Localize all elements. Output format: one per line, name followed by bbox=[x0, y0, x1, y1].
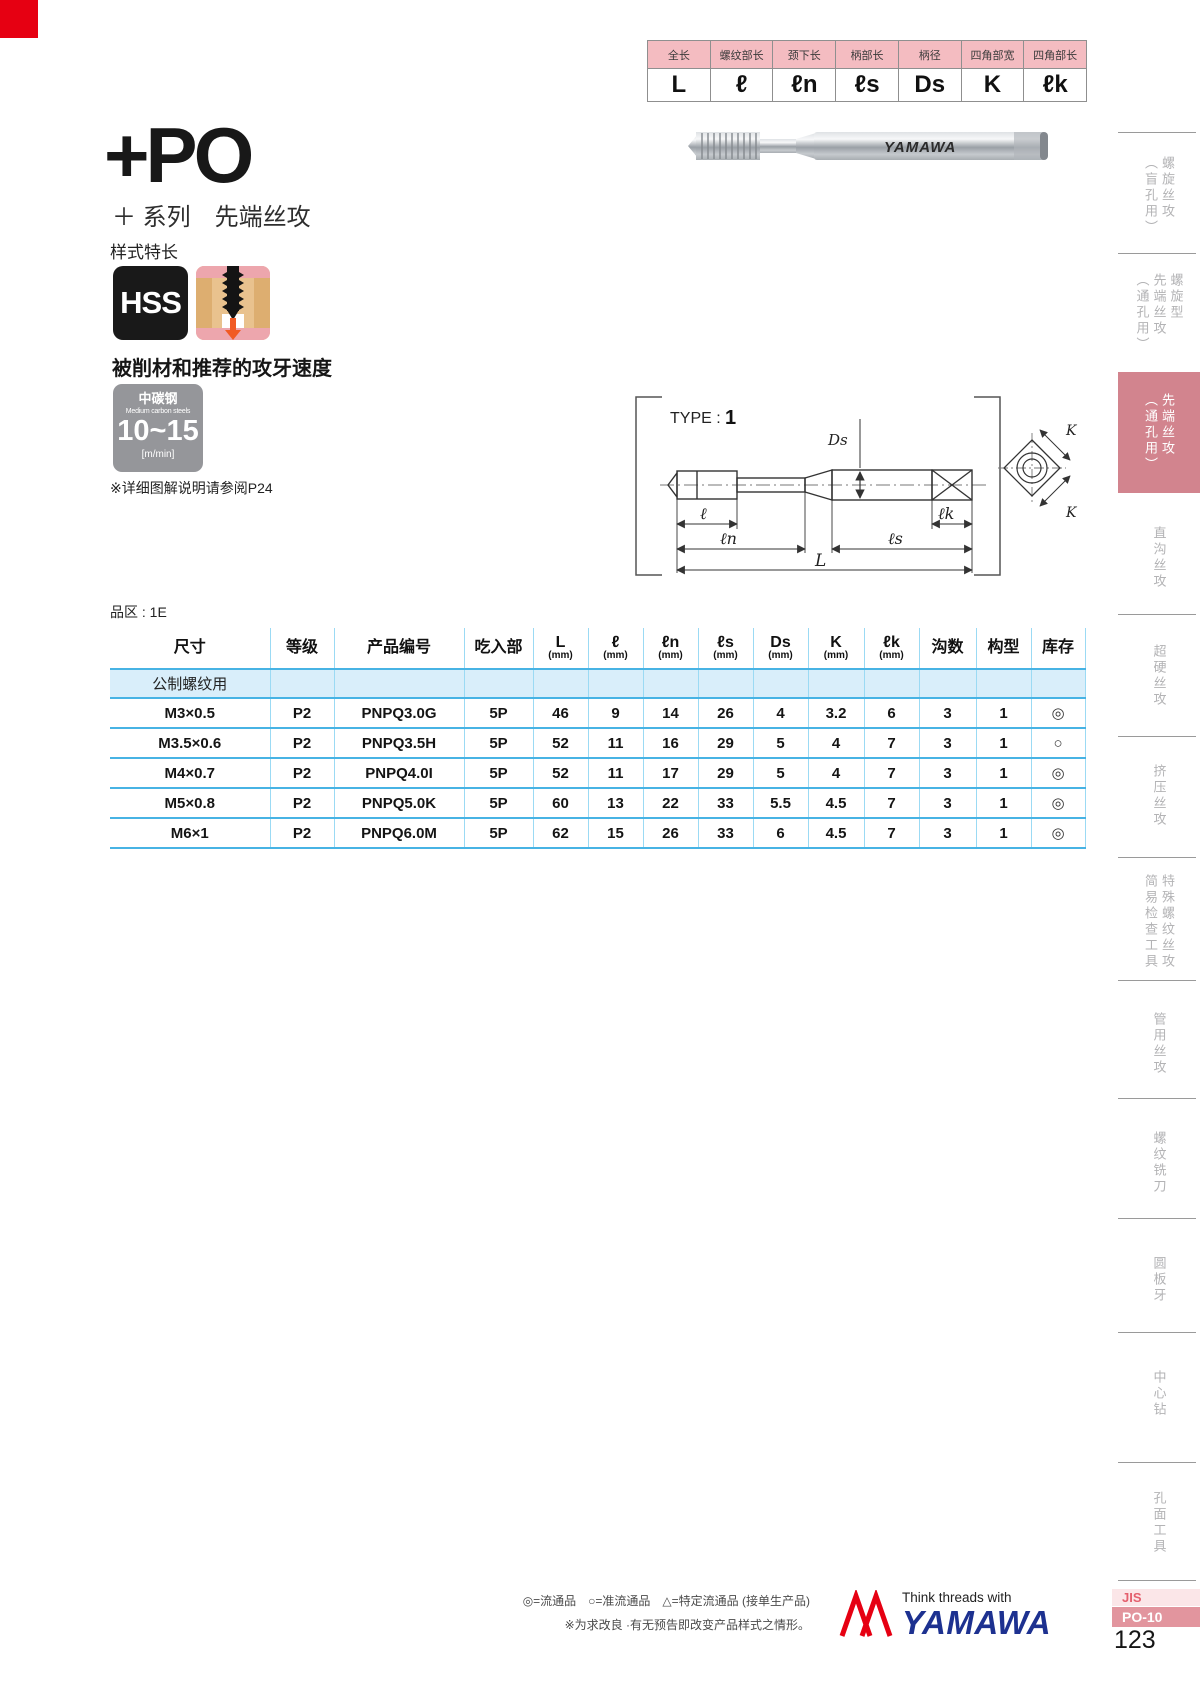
corner-marker bbox=[0, 0, 38, 38]
cell-value: 3.2 bbox=[808, 698, 864, 728]
cell-value: 4 bbox=[753, 698, 808, 728]
cell-value: 5P bbox=[464, 788, 533, 818]
cell-value: 16 bbox=[643, 728, 698, 758]
cell-value: 5P bbox=[464, 698, 533, 728]
cell-value: 11 bbox=[588, 728, 643, 758]
cell-value: 7 bbox=[864, 728, 919, 758]
cell-value: 7 bbox=[864, 818, 919, 848]
sidebar-tab-6: 特殊螺纹丝攻 简易检查工具 bbox=[1118, 866, 1200, 978]
table-row: M5×0.8P2PNPQ5.0K5P601322335.54.5731◎ bbox=[110, 788, 1085, 818]
sidebar-separator bbox=[1118, 1098, 1196, 1099]
speed-heading: 被削材和推荐的攻牙速度 bbox=[112, 352, 332, 381]
through-hole-icon bbox=[196, 266, 270, 340]
logo-name: YAMAWA bbox=[902, 1606, 1051, 1641]
cell-size: M3×0.5 bbox=[110, 698, 270, 728]
sidebar-tab-11: 孔面工具 bbox=[1118, 1476, 1200, 1570]
spec-col-label: 柄部长 bbox=[836, 41, 898, 69]
cell-value: 5 bbox=[753, 758, 808, 788]
cell-value: 1 bbox=[976, 728, 1031, 758]
cell-value: 60 bbox=[533, 788, 588, 818]
cell-product-code: PNPQ4.0I bbox=[334, 758, 464, 788]
sidebar-tab-0: 螺旋丝攻 （盲孔用） bbox=[1118, 140, 1200, 252]
sidebar-separator bbox=[1118, 1218, 1196, 1219]
cell-value: 7 bbox=[864, 758, 919, 788]
cell-stock: ◎ bbox=[1031, 788, 1085, 818]
catalog-page: 全长L螺纹部长ℓ颈下长ℓn柄部长ℓs柄径Ds四角部宽K四角部长ℓk YAMAWA… bbox=[0, 0, 1200, 1697]
cell-size: M4×0.7 bbox=[110, 758, 270, 788]
features-label: 样式特长 bbox=[110, 238, 178, 263]
cell-value: 1 bbox=[976, 758, 1031, 788]
cell-value: 5 bbox=[753, 728, 808, 758]
cell-value: 29 bbox=[698, 758, 753, 788]
col-header: ℓk(mm) bbox=[864, 628, 919, 669]
dim-elln-label: ℓn bbox=[720, 529, 737, 548]
spec-col: 颈下长ℓn bbox=[772, 41, 835, 101]
dim-K-bottom-label: K bbox=[1065, 505, 1078, 521]
cell-value: 14 bbox=[643, 698, 698, 728]
col-header: ℓ(mm) bbox=[588, 628, 643, 669]
cell-value: 5P bbox=[464, 758, 533, 788]
page-number: 123 bbox=[1114, 1626, 1156, 1655]
cell-value: 62 bbox=[533, 818, 588, 848]
spec-col-label: 螺纹部长 bbox=[711, 41, 773, 69]
cell-value: 3 bbox=[919, 728, 976, 758]
cell-value: 5.5 bbox=[753, 788, 808, 818]
col-header: ℓs(mm) bbox=[698, 628, 753, 669]
spec-legend: 全长L螺纹部长ℓ颈下长ℓn柄部长ℓs柄径Ds四角部宽K四角部长ℓk bbox=[647, 40, 1087, 102]
cell-value: 17 bbox=[643, 758, 698, 788]
spec-col-symbol: Ds bbox=[899, 69, 961, 101]
spec-col: 柄径Ds bbox=[898, 41, 961, 101]
cell-value: 5P bbox=[464, 818, 533, 848]
dim-ell-label: ℓ bbox=[700, 504, 707, 523]
col-header: K(mm) bbox=[808, 628, 864, 669]
cell-value: 11 bbox=[588, 758, 643, 788]
sidebar-tab-9: 圆板牙 bbox=[1118, 1238, 1200, 1322]
right-bracket bbox=[974, 397, 1000, 575]
col-header: 尺寸 bbox=[110, 628, 270, 669]
cell-value: P2 bbox=[270, 758, 334, 788]
sidebar-separator bbox=[1118, 132, 1196, 133]
spec-col-label: 颈下长 bbox=[773, 41, 835, 69]
sidebar-tab-10: 中心钻 bbox=[1118, 1350, 1200, 1438]
cell-stock: ◎ bbox=[1031, 758, 1085, 788]
col-header: 等级 bbox=[270, 628, 334, 669]
left-bracket bbox=[636, 397, 662, 575]
spec-col: 螺纹部长ℓ bbox=[710, 41, 773, 101]
cell-value: 13 bbox=[588, 788, 643, 818]
cell-value: 4.5 bbox=[808, 788, 864, 818]
col-header: ℓn(mm) bbox=[643, 628, 698, 669]
spec-col: 全长L bbox=[648, 41, 710, 101]
spec-col-label: 四角部宽 bbox=[962, 41, 1024, 69]
speed-unit: [m/min] bbox=[113, 448, 203, 461]
dim-ellk-label: ℓk bbox=[938, 504, 954, 523]
material-name-cn: 中碳钢 bbox=[113, 391, 203, 407]
sidebar-tab-1: 螺旋型 先端丝攻 （通孔用） bbox=[1118, 262, 1200, 364]
cell-value: 52 bbox=[533, 758, 588, 788]
cell-value: P2 bbox=[270, 728, 334, 758]
cell-value: 3 bbox=[919, 788, 976, 818]
cell-size: M6×1 bbox=[110, 818, 270, 848]
cell-value: 52 bbox=[533, 728, 588, 758]
sidebar-tab-5: 挤压丝攻 bbox=[1118, 750, 1200, 842]
spec-col-label: 柄径 bbox=[899, 41, 961, 69]
cell-value: 3 bbox=[919, 818, 976, 848]
cell-value: 46 bbox=[533, 698, 588, 728]
cell-value: 9 bbox=[588, 698, 643, 728]
sidebar-separator bbox=[1118, 253, 1196, 254]
cell-value: 5P bbox=[464, 728, 533, 758]
cell-value: 4 bbox=[808, 728, 864, 758]
cell-value: 4.5 bbox=[808, 818, 864, 848]
cell-product-code: PNPQ6.0M bbox=[334, 818, 464, 848]
spec-col-label: 四角部长 bbox=[1024, 41, 1086, 69]
jis-label: JIS bbox=[1112, 1589, 1200, 1606]
cell-value: 26 bbox=[643, 818, 698, 848]
cell-product-code: PNPQ5.0K bbox=[334, 788, 464, 818]
spec-col-label: 全长 bbox=[648, 41, 710, 69]
cell-value: 7 bbox=[864, 788, 919, 818]
spec-col: 四角部长ℓk bbox=[1023, 41, 1086, 101]
hss-badge-icon: HSS bbox=[113, 266, 188, 340]
sidebar-tab-3: 直沟丝攻 bbox=[1118, 512, 1200, 604]
yamawa-logo: Think threads with YAMAWA bbox=[838, 1590, 1051, 1641]
footer-note: ※为求改良 ·有无预告即改变产品样式之情形。 bbox=[360, 1616, 810, 1633]
type-diagram: TYPE : 1 Ds bbox=[620, 383, 1090, 583]
col-header: 构型 bbox=[976, 628, 1031, 669]
sidebar-separator bbox=[1118, 1580, 1196, 1581]
sidebar-nav: 螺旋丝攻 （盲孔用）螺旋型 先端丝攻 （通孔用）先端丝攻 （通孔用）直沟丝攻超硬… bbox=[1118, 0, 1200, 1697]
dim-ds-label: Ds bbox=[827, 431, 848, 449]
table-row: M4×0.7P2PNPQ4.0I5P5211172954731◎ bbox=[110, 758, 1085, 788]
dim-ells-label: ℓs bbox=[888, 529, 903, 548]
col-header: 产品编号 bbox=[334, 628, 464, 669]
cell-value: 29 bbox=[698, 728, 753, 758]
series-code: +PO bbox=[104, 116, 250, 194]
cell-value: 26 bbox=[698, 698, 753, 728]
yamawa-logo-mark bbox=[838, 1590, 894, 1640]
tap-photo-brand: YAMAWA bbox=[884, 139, 956, 156]
end-view: K K bbox=[998, 423, 1078, 521]
sidebar-tab-4: 超硬丝攻 bbox=[1118, 630, 1200, 722]
spec-col-symbol: ℓn bbox=[773, 69, 835, 101]
cell-value: 33 bbox=[698, 788, 753, 818]
table-subheader-row: 公制螺纹用 bbox=[110, 669, 1085, 698]
speed-note: ※详细图解说明请参阅P24 bbox=[110, 478, 273, 498]
dim-L-label: L bbox=[814, 551, 826, 571]
col-header: 吃入部 bbox=[464, 628, 533, 669]
table-row: M6×1P2PNPQ6.0M5P6215263364.5731◎ bbox=[110, 818, 1085, 848]
sidebar-separator bbox=[1118, 1462, 1196, 1463]
series-subtitle: ＋ 系列 先端丝攻 bbox=[112, 197, 311, 232]
sidebar-tab-8: 螺纹铣刀 bbox=[1118, 1116, 1200, 1210]
table-subheader: 公制螺纹用 bbox=[110, 669, 270, 698]
cell-size: M3.5×0.6 bbox=[110, 728, 270, 758]
speed-badge: 中碳钢 Medium carbon steels 10~15 [m/min] bbox=[113, 384, 203, 472]
type-label: TYPE : bbox=[670, 410, 721, 427]
cell-value: P2 bbox=[270, 818, 334, 848]
cell-stock: ◎ bbox=[1031, 818, 1085, 848]
sidebar-tab-7: 管用丝攻 bbox=[1118, 996, 1200, 1092]
cell-value: 15 bbox=[588, 818, 643, 848]
sidebar-separator bbox=[1118, 980, 1196, 981]
col-header: 库存 bbox=[1031, 628, 1085, 669]
cell-value: 1 bbox=[976, 698, 1031, 728]
table-row: M3.5×0.6P2PNPQ3.5H5P5211162954731○ bbox=[110, 728, 1085, 758]
sidebar-separator bbox=[1118, 614, 1196, 615]
cell-value: 1 bbox=[976, 818, 1031, 848]
spec-col-symbol: ℓk bbox=[1024, 69, 1086, 101]
sidebar-separator bbox=[1118, 1332, 1196, 1333]
spec-col-symbol: ℓs bbox=[836, 69, 898, 101]
stock-legend: ◎=流通品 ○=准流通品 △=特定流通品 (接单生产品) bbox=[360, 1592, 810, 1609]
sidebar-tab-2: 先端丝攻 （通孔用） bbox=[1118, 372, 1200, 493]
cell-size: M5×0.8 bbox=[110, 788, 270, 818]
table-row: M3×0.5P2PNPQ3.0G5P469142643.2631◎ bbox=[110, 698, 1085, 728]
cell-value: P2 bbox=[270, 788, 334, 818]
spec-col-symbol: L bbox=[648, 69, 710, 101]
page-code-label: PO-10 bbox=[1112, 1607, 1200, 1627]
type-value: 1 bbox=[725, 407, 736, 429]
cell-product-code: PNPQ3.0G bbox=[334, 698, 464, 728]
col-header: Ds(mm) bbox=[753, 628, 808, 669]
spec-col-symbol: K bbox=[962, 69, 1024, 101]
cell-value: 1 bbox=[976, 788, 1031, 818]
cell-stock: ◎ bbox=[1031, 698, 1085, 728]
cell-value: 33 bbox=[698, 818, 753, 848]
speed-range: 10~15 bbox=[113, 416, 203, 448]
spec-col: 柄部长ℓs bbox=[835, 41, 898, 101]
cell-value: 22 bbox=[643, 788, 698, 818]
cell-value: P2 bbox=[270, 698, 334, 728]
dim-K-top-label: K bbox=[1065, 423, 1078, 439]
cell-stock: ○ bbox=[1031, 728, 1085, 758]
cell-value: 3 bbox=[919, 698, 976, 728]
col-header: L(mm) bbox=[533, 628, 588, 669]
sidebar-separator bbox=[1118, 857, 1196, 858]
col-header: 沟数 bbox=[919, 628, 976, 669]
spec-table: 尺寸等级产品编号吃入部L(mm)ℓ(mm)ℓn(mm)ℓs(mm)Ds(mm)K… bbox=[110, 628, 1086, 849]
zone-label: 品区 : 1E bbox=[110, 602, 167, 622]
cell-product-code: PNPQ3.5H bbox=[334, 728, 464, 758]
cell-value: 3 bbox=[919, 758, 976, 788]
spec-col: 四角部宽K bbox=[961, 41, 1024, 101]
cell-value: 4 bbox=[808, 758, 864, 788]
sidebar-separator bbox=[1118, 736, 1196, 737]
tap-photo: YAMAWA bbox=[688, 124, 1080, 168]
spec-col-symbol: ℓ bbox=[711, 69, 773, 101]
cell-value: 6 bbox=[864, 698, 919, 728]
cell-value: 6 bbox=[753, 818, 808, 848]
